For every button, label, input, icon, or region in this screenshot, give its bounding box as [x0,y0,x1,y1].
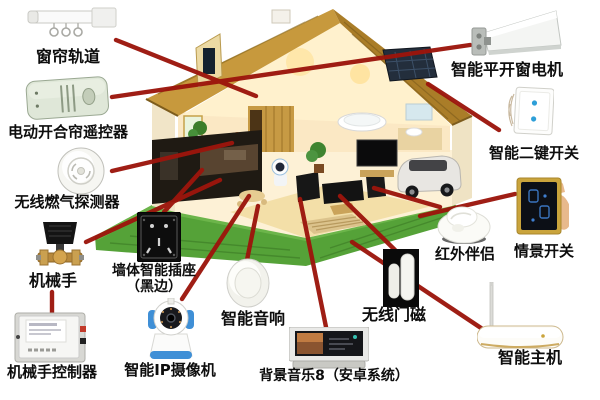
smart-home-diagram: 窗帘轨道 电动开合帘遥控器 无线燃气探测器 机械手 机械手控制器 墙体智能插座 … [0,0,600,400]
label-text: 情景开关 [514,242,574,260]
chimney [272,10,290,23]
wall-socket-image [137,212,181,266]
label-wall-socket: 墙体智能插座 （黑边） [108,264,200,295]
label-scene-switch: 情景开关 [512,243,576,260]
label-text: 无线门磁 [362,305,426,324]
label-smart-speaker: 智能音响 [218,310,288,328]
label-door-magnet: 无线门磁 [358,306,430,324]
label-ip-camera: 智能IP摄像机 [118,362,222,379]
label-robot-hand: 机械手 [26,272,80,290]
label-text-line2: （黑边） [108,280,200,296]
gas-detector-image [56,146,106,200]
smart-speaker-image [226,258,270,312]
background-music-image [289,327,369,373]
curtain-remote-image [24,73,111,127]
label-text: 窗帘轨道 [36,47,100,66]
label-curtain-track: 窗帘轨道 [30,48,106,66]
robot-hand-controller-image [14,312,88,368]
label-robot-hand-controller: 机械手控制器 [2,364,102,381]
label-text: 智能平开窗电机 [451,60,563,79]
label-text: 墙体智能插座 [112,263,196,279]
label-gas-detector: 无线燃气探测器 [4,194,130,211]
tv [357,140,397,166]
label-text: 智能主机 [498,348,562,367]
label-infrared-companion: 红外伴侣 [432,246,498,263]
label-text: 智能IP摄像机 [124,361,216,379]
robot-hand-image [36,220,84,278]
ip-camera-image [146,298,196,366]
indoor-camera [272,159,288,186]
label-smart-host: 智能主机 [496,349,564,367]
label-text: 背景音乐8（安卓系统） [259,368,409,384]
label-text: 智能二键开关 [489,144,579,162]
label-background-music: 背景音乐8（安卓系统） [252,369,416,385]
label-text: 红外伴侣 [435,245,495,263]
label-curtain-remote: 电动开合帘遥控器 [2,124,134,141]
label-window-motor: 智能平开窗电机 [440,61,574,79]
label-text: 电动开合帘遥控器 [8,123,128,141]
infrared-companion-image [436,197,492,251]
two-key-switch-image [506,86,554,142]
door-magnet-image [383,249,419,311]
label-text: 机械手控制器 [7,363,97,381]
label-two-key-switch: 智能二键开关 [487,145,581,162]
curtain-track-image [26,6,122,52]
label-text: 机械手 [29,271,77,290]
label-text: 智能音响 [221,309,285,328]
window-motor-image [468,6,564,64]
smart-host-image [477,282,565,354]
scene-switch-image [511,176,569,242]
label-text: 无线燃气探测器 [14,193,119,211]
